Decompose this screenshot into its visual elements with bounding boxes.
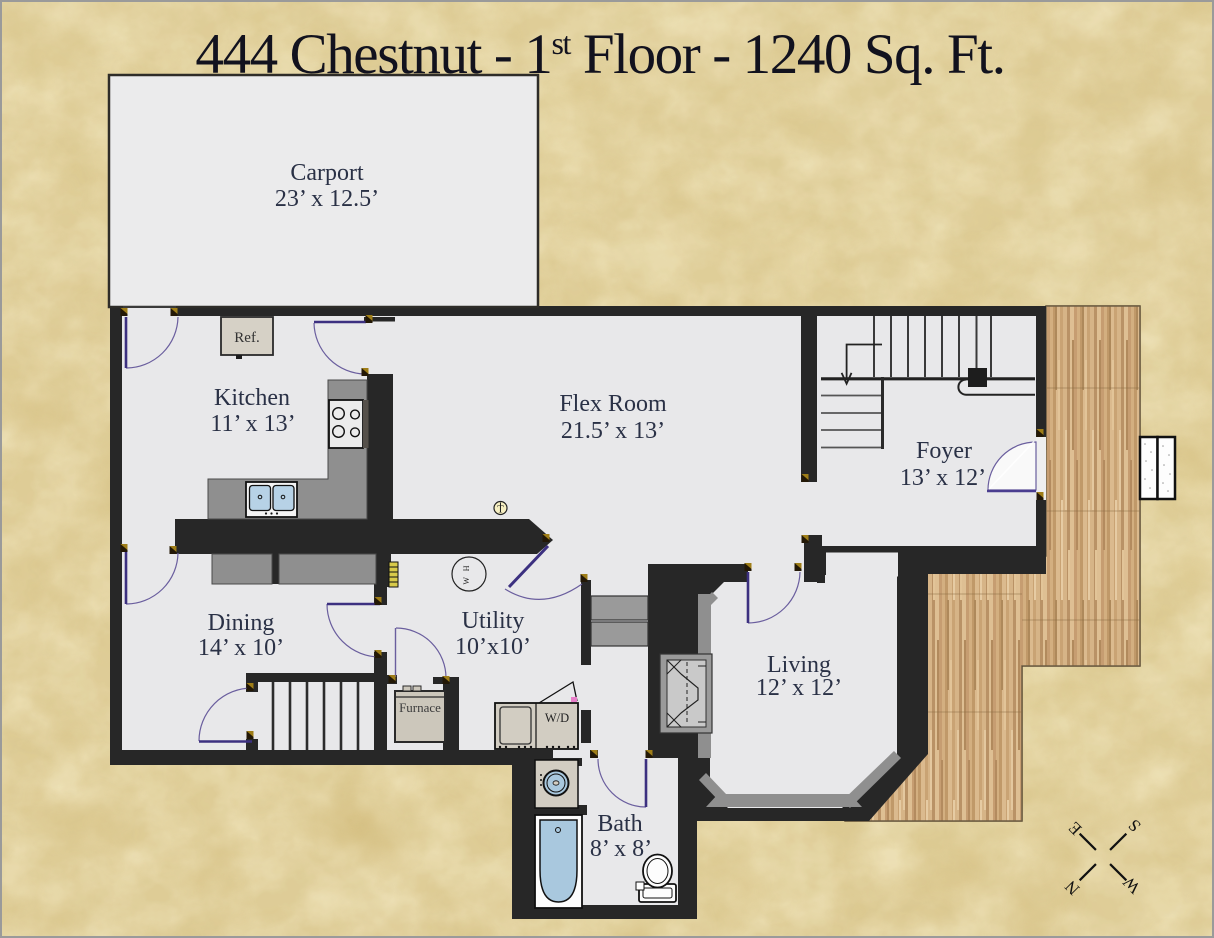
svg-text:Kitchen: Kitchen [214,385,290,411]
svg-text:W H: W H [462,563,471,584]
svg-text:W/D: W/D [545,711,569,725]
svg-text:Carport: Carport [290,160,364,186]
svg-text:14’ x 10’: 14’ x 10’ [198,635,284,661]
svg-text:Utility: Utility [462,608,525,634]
svg-text:Bath: Bath [597,811,642,837]
svg-text:13’ x 12’: 13’ x 12’ [900,465,986,491]
svg-text:444 Chestnut - 1st Floor - 124: 444 Chestnut - 1st Floor - 1240 Sq. Ft. [195,23,1004,86]
svg-text:Foyer: Foyer [916,438,972,464]
svg-text:11’ x 13’: 11’ x 13’ [210,411,295,437]
svg-text:8’ x 8’: 8’ x 8’ [590,836,652,862]
svg-text:Flex Room: Flex Room [559,391,667,417]
svg-text:Ref.: Ref. [234,330,259,346]
svg-text:21.5’ x 13’: 21.5’ x 13’ [561,418,665,444]
svg-text:Dining: Dining [208,610,275,636]
svg-text:23’ x 12.5’: 23’ x 12.5’ [275,186,379,212]
svg-text:Furnace: Furnace [399,700,441,715]
svg-text:12’ x 12’: 12’ x 12’ [756,675,842,701]
svg-text:10’x10’: 10’x10’ [455,634,531,660]
